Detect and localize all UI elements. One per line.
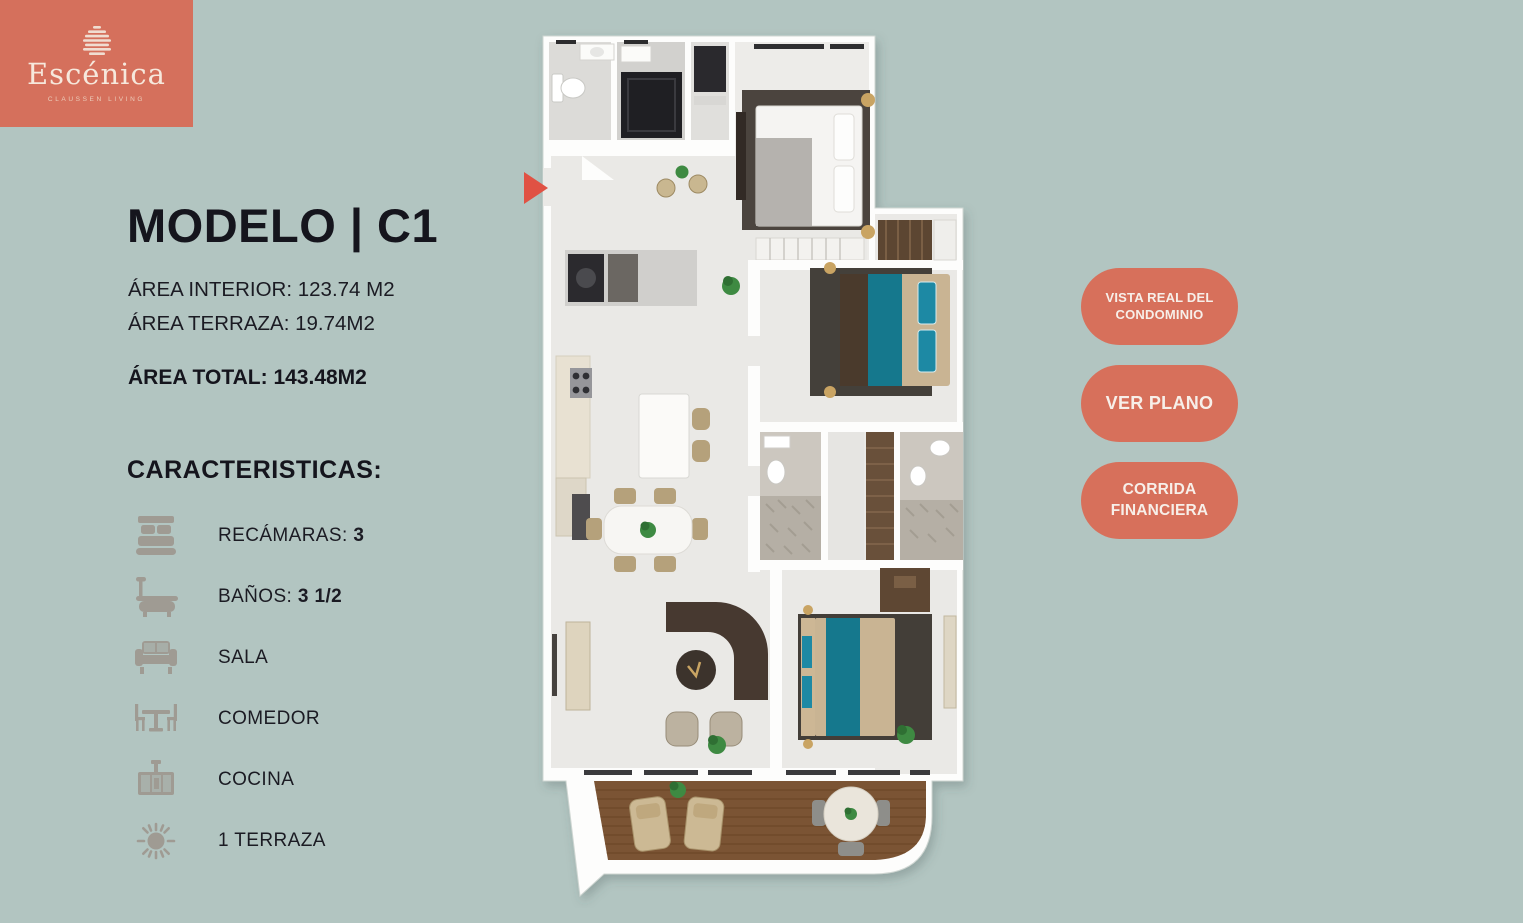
vista-real-button[interactable]: VISTA REAL DEL CONDOMINIO: [1081, 268, 1238, 345]
features-list: RECÁMARAS: 3 BAÑOS: 3 1/2: [128, 505, 458, 871]
feature-row-terraza: 1 TERRAZA: [128, 810, 458, 871]
brand-logo-icon: [80, 26, 114, 56]
area-interior: ÁREA INTERIOR: 123.74 M2: [128, 273, 395, 307]
feature-label: COMEDOR: [218, 708, 320, 730]
feature-row-sala: SALA: [128, 627, 458, 688]
sun-icon: [128, 818, 184, 864]
dining-table-icon: [128, 697, 184, 741]
features-heading: CARACTERISTICAS:: [127, 456, 382, 485]
area-lines: ÁREA INTERIOR: 123.74 M2 ÁREA TERRAZA: 1…: [128, 273, 395, 341]
brand-logo-block: Escénica CLAUSSEN LIVING: [0, 0, 193, 127]
middle-bathrooms: [760, 432, 963, 560]
corrida-financiera-button[interactable]: CORRIDA FINANCIERA: [1081, 462, 1238, 539]
terrace: [580, 781, 930, 860]
feature-label: RECÁMARAS: 3: [218, 525, 364, 547]
page-title: MODELO | C1: [127, 198, 438, 253]
utility-closet: [565, 250, 697, 306]
ver-plano-button[interactable]: VER PLANO: [1081, 365, 1238, 442]
feature-row-recamaras: RECÁMARAS: 3: [128, 505, 458, 566]
feature-label: 1 TERRAZA: [218, 830, 326, 852]
brand-tagline: CLAUSSEN LIVING: [48, 96, 145, 103]
bathtub-icon: [128, 575, 184, 619]
area-total: ÁREA TOTAL: 143.48M2: [128, 366, 367, 390]
hall-closet: [694, 46, 726, 105]
action-buttons: VISTA REAL DEL CONDOMINIO VER PLANO CORR…: [1081, 268, 1238, 559]
feature-label: SALA: [218, 647, 268, 669]
feature-row-cocina: COCINA: [128, 749, 458, 810]
sofa-icon: [128, 636, 184, 680]
kitchen-stove-icon: [128, 758, 184, 802]
area-terraza: ÁREA TERRAZA: 19.74M2: [128, 307, 395, 341]
feature-row-banos: BAÑOS: 3 1/2: [128, 566, 458, 627]
brand-name: Escénica: [27, 60, 166, 89]
floorplan-render: [520, 16, 982, 908]
feature-label: BAÑOS: 3 1/2: [218, 586, 342, 608]
bed-icon: [128, 514, 184, 558]
feature-row-comedor: COMEDOR: [128, 688, 458, 749]
feature-label: COCINA: [218, 769, 294, 791]
